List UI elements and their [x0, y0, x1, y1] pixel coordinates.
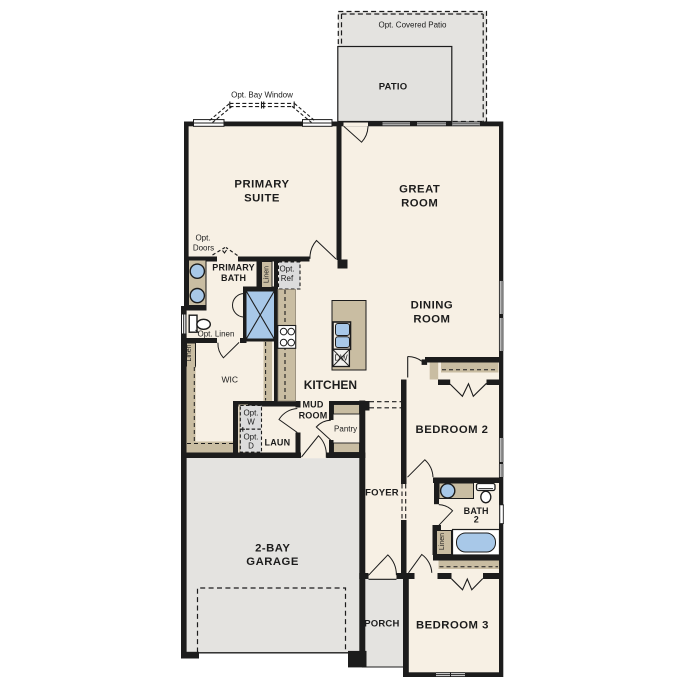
svg-text:Opt.: Opt.	[195, 234, 210, 243]
svg-text:DINING: DINING	[411, 300, 454, 312]
svg-text:Opt. Covered Patio: Opt. Covered Patio	[378, 21, 447, 30]
svg-text:Opt. Bay Window: Opt. Bay Window	[231, 90, 293, 99]
svg-text:Ref: Ref	[281, 274, 294, 283]
svg-text:DW: DW	[334, 353, 348, 362]
svg-text:Opt.: Opt.	[243, 409, 258, 418]
svg-text:W: W	[247, 418, 255, 427]
svg-text:ROOM: ROOM	[401, 198, 438, 210]
svg-text:BATH: BATH	[221, 273, 246, 283]
svg-text:PORCH: PORCH	[364, 618, 399, 629]
svg-text:GREAT: GREAT	[399, 184, 440, 196]
svg-text:PRIMARY: PRIMARY	[212, 263, 255, 273]
svg-text:Opt.: Opt.	[243, 433, 258, 442]
svg-text:MUD: MUD	[302, 399, 323, 409]
svg-text:PRIMARY: PRIMARY	[234, 179, 289, 191]
svg-text:Pantry: Pantry	[334, 425, 357, 434]
svg-text:Linen: Linen	[264, 266, 271, 283]
svg-text:Opt. Linen: Opt. Linen	[198, 329, 235, 338]
svg-text:LAUN: LAUN	[265, 438, 291, 448]
svg-text:2: 2	[474, 514, 479, 524]
svg-text:FOYER: FOYER	[365, 488, 399, 499]
svg-text:Linen: Linen	[186, 344, 193, 361]
svg-text:WIC: WIC	[222, 374, 239, 384]
svg-text:Opt.: Opt.	[279, 265, 294, 274]
svg-text:BEDROOM 2: BEDROOM 2	[416, 424, 489, 436]
svg-text:Linen: Linen	[439, 533, 446, 550]
svg-text:ROOM: ROOM	[413, 314, 450, 326]
svg-text:ROOM: ROOM	[299, 411, 328, 421]
svg-text:SUITE: SUITE	[244, 193, 280, 205]
svg-text:2-BAY: 2-BAY	[255, 542, 290, 554]
svg-text:D: D	[248, 442, 254, 451]
svg-text:Doors: Doors	[193, 244, 214, 253]
svg-text:KITCHEN: KITCHEN	[304, 378, 357, 392]
svg-text:BEDROOM 3: BEDROOM 3	[416, 620, 489, 632]
svg-text:PATIO: PATIO	[379, 82, 408, 93]
svg-text:GARAGE: GARAGE	[246, 556, 299, 568]
